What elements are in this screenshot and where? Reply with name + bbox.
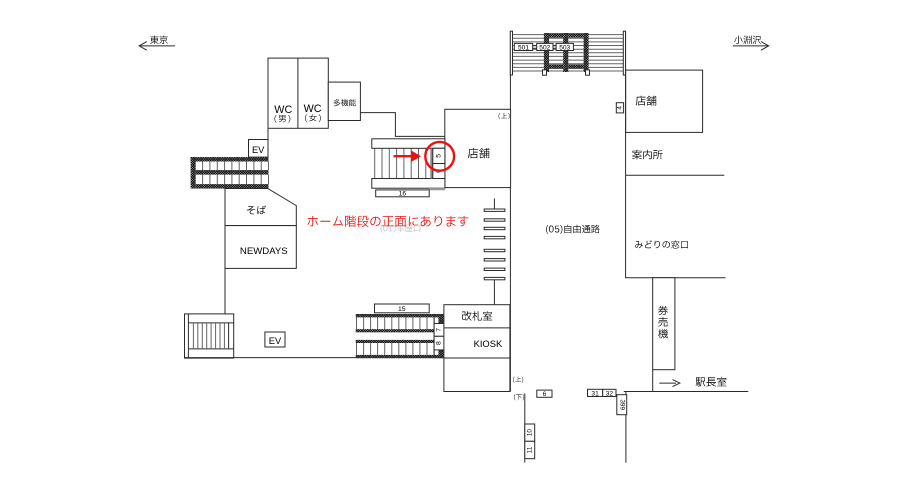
svg-text:10: 10 [526, 429, 533, 437]
svg-text:501: 501 [518, 44, 529, 51]
svg-text:EV: EV [252, 145, 265, 155]
svg-text:16: 16 [399, 191, 407, 198]
svg-text:11: 11 [526, 446, 533, 453]
svg-text:NEWDAYS: NEWDAYS [240, 246, 288, 257]
svg-text:7: 7 [436, 328, 443, 332]
svg-text:EV: EV [269, 336, 282, 346]
svg-text:4: 4 [617, 106, 624, 110]
svg-text:399: 399 [618, 399, 625, 410]
svg-text:WC: WC [274, 104, 292, 116]
svg-text:KIOSK: KIOSK [474, 338, 503, 349]
svg-text:502: 502 [539, 44, 550, 51]
svg-text:15: 15 [398, 306, 406, 313]
svg-text:31: 31 [591, 390, 599, 397]
svg-text:WC: WC [304, 103, 322, 115]
svg-text:503: 503 [559, 44, 570, 51]
svg-text:6: 6 [543, 391, 547, 398]
svg-text:8: 8 [436, 341, 443, 345]
svg-text:32: 32 [606, 390, 614, 397]
svg-text:5: 5 [435, 154, 442, 158]
